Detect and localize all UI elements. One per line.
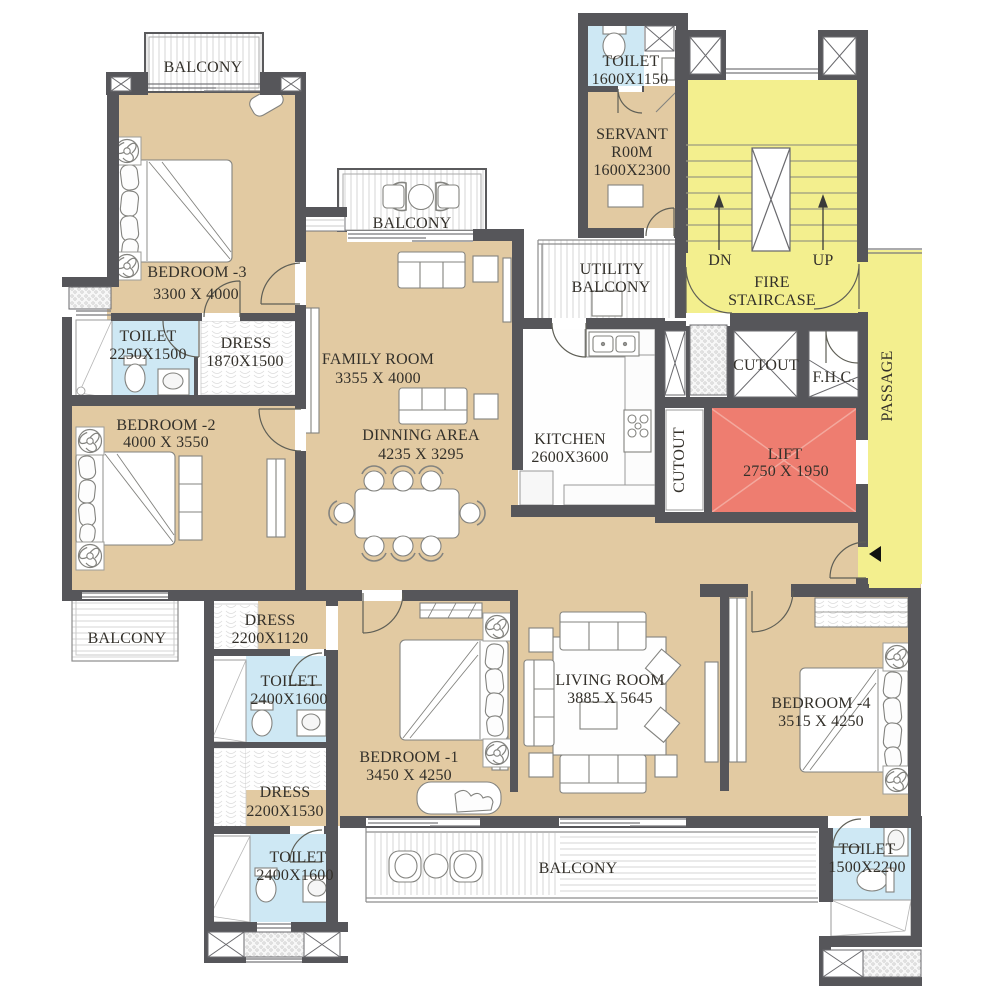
svg-text:DINNING AREA: DINNING AREA [362,427,480,444]
svg-text:1600X2300: 1600X2300 [593,162,670,179]
svg-text:4235 X 3295: 4235 X 3295 [378,446,464,463]
svg-text:3355 X 4000: 3355 X 4000 [335,370,421,387]
svg-text:DRESS: DRESS [245,612,296,629]
svg-text:UP: UP [813,252,834,269]
svg-text:BALCONY: BALCONY [373,215,452,232]
svg-text:1870X1500: 1870X1500 [206,353,283,370]
svg-text:STAIRCASE: STAIRCASE [728,292,816,309]
svg-text:CUTOUT: CUTOUT [733,357,799,374]
svg-text:PASSAGE: PASSAGE [879,350,896,421]
svg-text:TOILET: TOILET [603,53,660,70]
svg-text:FAMILY ROOM: FAMILY ROOM [322,351,434,368]
svg-text:BALCONY: BALCONY [88,630,167,647]
svg-text:2200X1120: 2200X1120 [232,630,309,647]
svg-text:2250X1500: 2250X1500 [109,346,186,363]
svg-text:R00M: R00M [611,144,653,161]
svg-text:DRESS: DRESS [221,335,272,352]
svg-text:CUTOUT: CUTOUT [671,427,688,493]
svg-text:4000 X 3550: 4000 X 3550 [123,434,209,451]
svg-text:2600X3600: 2600X3600 [531,449,608,466]
svg-text:BEDROOM -2: BEDROOM -2 [116,417,215,434]
svg-text:2750 X 1950: 2750 X 1950 [743,463,829,480]
svg-text:3300 X 4000: 3300 X 4000 [153,286,239,303]
svg-text:TOILET: TOILET [270,849,327,866]
svg-text:DN: DN [708,252,732,269]
svg-text:SERVANT: SERVANT [596,126,668,143]
svg-text:FIRE: FIRE [754,274,789,291]
svg-text:UTILITY: UTILITY [580,261,645,278]
svg-text:3885 X 5645: 3885 X 5645 [567,690,653,707]
svg-text:2400X1600: 2400X1600 [256,867,333,884]
svg-text:KITCHEN: KITCHEN [534,431,606,448]
svg-text:2200X1530: 2200X1530 [246,803,323,820]
svg-text:TOILET: TOILET [120,328,177,345]
svg-text:LIFT: LIFT [768,446,803,463]
svg-text:BEDROOM -1: BEDROOM -1 [359,749,458,766]
svg-text:BALCONY: BALCONY [164,59,243,76]
svg-text:TOILET: TOILET [261,673,318,690]
svg-text:2400X1600: 2400X1600 [250,691,327,708]
svg-text:1500X2200: 1500X2200 [828,859,905,876]
svg-text:LIVING ROOM: LIVING ROOM [555,672,664,689]
svg-text:BALCONY: BALCONY [572,279,651,296]
svg-text:BEDROOM -4: BEDROOM -4 [771,695,870,712]
svg-text:F.H.C.: F.H.C. [812,369,855,386]
svg-text:BEDROOM -3: BEDROOM -3 [147,264,246,281]
svg-text:1600X1150: 1600X1150 [592,71,669,88]
svg-text:DRESS: DRESS [260,784,311,801]
svg-text:TOILET: TOILET [839,841,896,858]
svg-text:BALCONY: BALCONY [539,860,618,877]
svg-text:3450 X 4250: 3450 X 4250 [366,767,452,784]
svg-text:3515 X 4250: 3515 X 4250 [778,713,864,730]
